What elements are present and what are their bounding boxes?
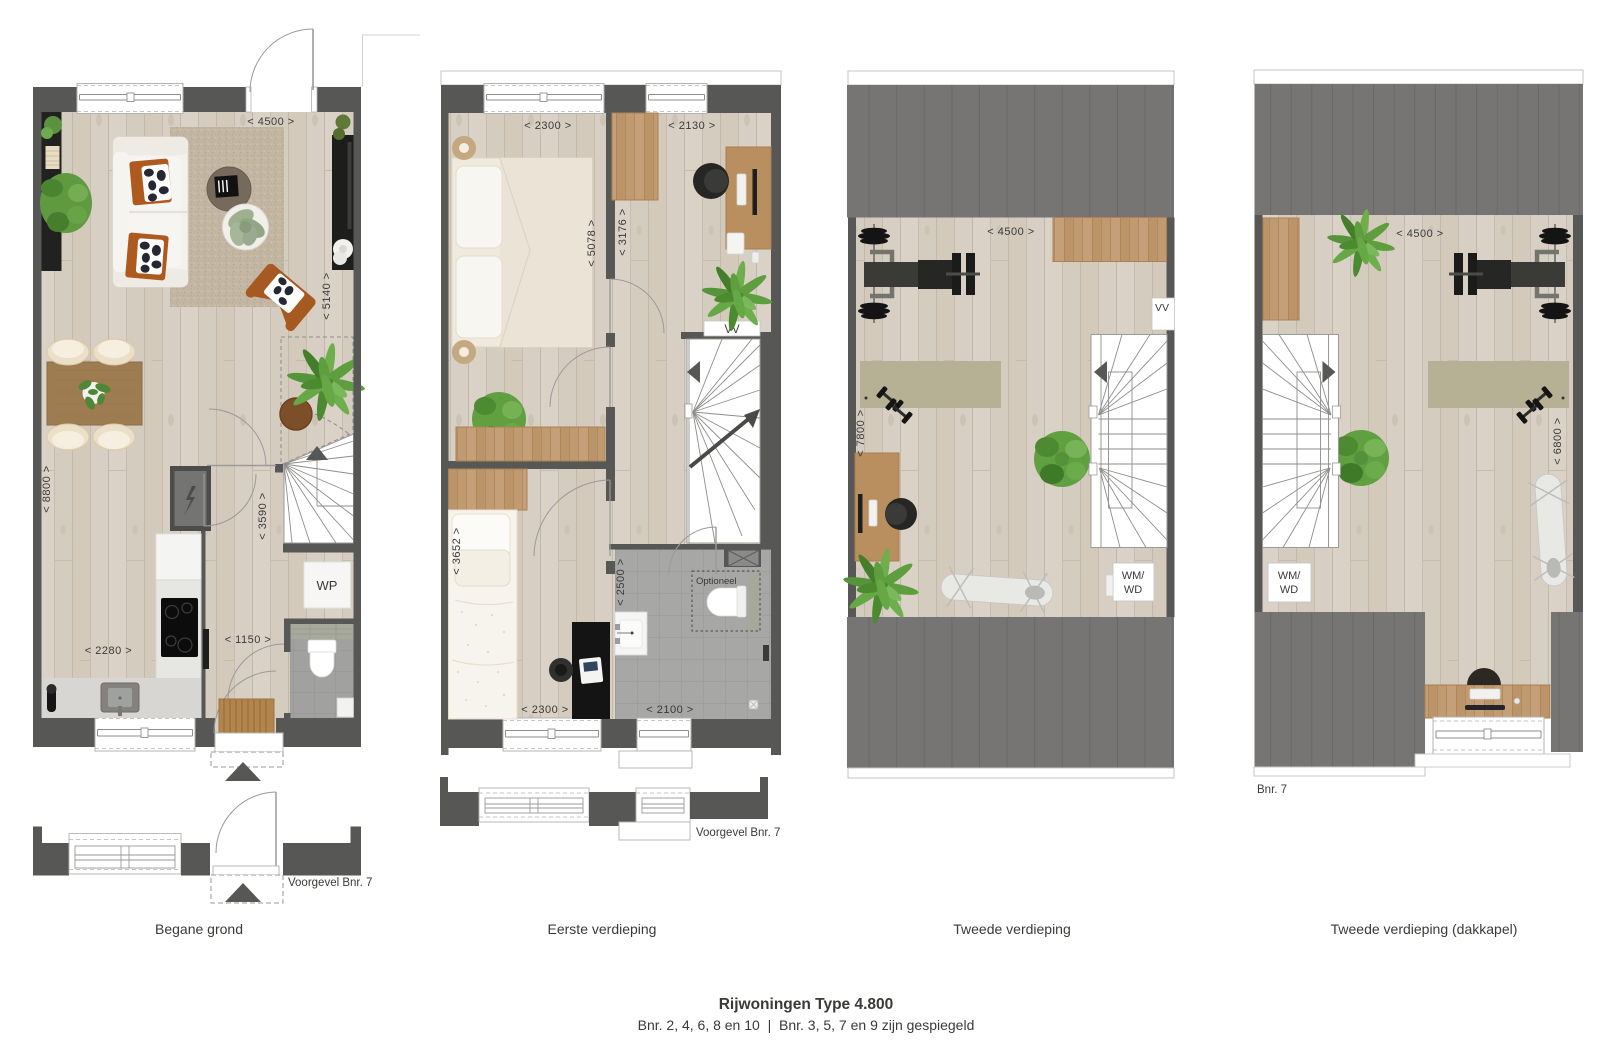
svg-text:Tweede verdieping (dakkapel): Tweede verdieping (dakkapel): [1331, 921, 1518, 937]
svg-text:< 7800 >: < 7800 >: [855, 409, 867, 456]
svg-text:< 4500 >: < 4500 >: [247, 116, 294, 128]
svg-text:WD: WD: [1124, 584, 1142, 596]
svg-text:< 2280 >: < 2280 >: [85, 645, 132, 657]
svg-text:< 4500 >: < 4500 >: [1396, 228, 1443, 240]
svg-text:< 1150 >: < 1150 >: [225, 634, 272, 646]
svg-text:VV: VV: [1155, 302, 1169, 314]
svg-text:< 2500 >: < 2500 >: [615, 558, 627, 605]
svg-text:Tweede verdieping: Tweede verdieping: [953, 921, 1071, 937]
svg-text:Bnr. 2, 4, 6, 8 en 10 | Bnr.: Bnr. 2, 4, 6, 8 en 10 | Bnr. 3, 5, 7 en …: [638, 1017, 975, 1033]
svg-text:< 3652 >: < 3652 >: [451, 527, 463, 574]
svg-text:WM/: WM/: [1278, 570, 1302, 582]
svg-text:< 3176 >: < 3176 >: [617, 208, 629, 255]
svg-text:< 2300 >: < 2300 >: [524, 120, 571, 132]
svg-text:< 2300 >: < 2300 >: [521, 704, 568, 716]
svg-text:< 5078 >: < 5078 >: [586, 219, 598, 266]
svg-text:WP: WP: [317, 578, 338, 593]
svg-text:< 4500 >: < 4500 >: [987, 226, 1034, 238]
svg-text:Begane grond: Begane grond: [155, 921, 243, 937]
svg-text:< 8800 >: < 8800 >: [41, 465, 53, 512]
svg-text:< 3590 >: < 3590 >: [257, 492, 269, 539]
svg-text:WM/: WM/: [1122, 570, 1146, 582]
svg-text:< 2130 >: < 2130 >: [668, 120, 715, 132]
svg-text:Optioneel: Optioneel: [696, 576, 737, 587]
svg-text:Bnr. 7: Bnr. 7: [1257, 784, 1287, 796]
svg-text:< 2100 >: < 2100 >: [646, 704, 693, 716]
svg-text:Voorgevel Bnr. 7: Voorgevel Bnr. 7: [288, 877, 372, 889]
svg-text:Eerste verdieping: Eerste verdieping: [548, 921, 657, 937]
svg-text:< 6800 >: < 6800 >: [1552, 417, 1564, 464]
svg-text:Voorgevel Bnr. 7: Voorgevel Bnr. 7: [696, 827, 780, 839]
svg-text:Rijwoningen Type 4.800: Rijwoningen Type 4.800: [719, 996, 894, 1013]
svg-text:WD: WD: [1280, 584, 1298, 596]
svg-text:< 5140 >: < 5140 >: [321, 272, 333, 319]
